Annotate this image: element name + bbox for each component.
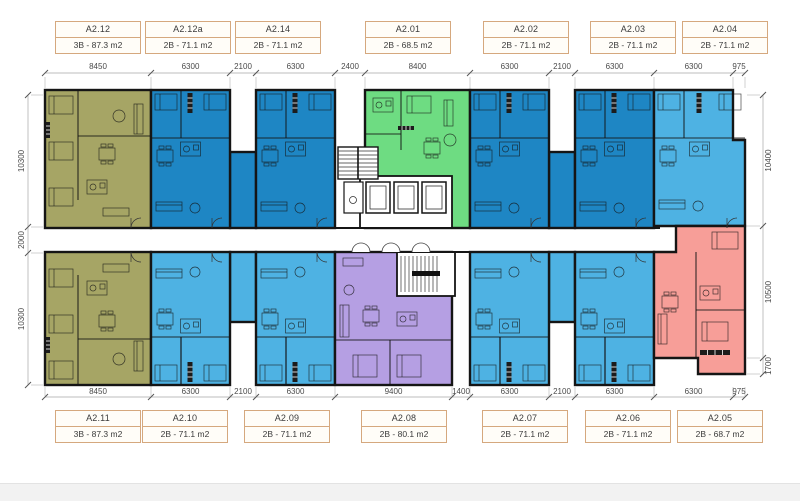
unit-label-a2-12[interactable]: A2.123B - 87.3 m2 xyxy=(55,21,141,54)
unit-id: A2.09 xyxy=(245,411,329,427)
unit-type-area: 3B - 87.3 m2 xyxy=(56,427,140,442)
dimension-value: 2100 xyxy=(553,387,571,396)
unit-type-area: 2B - 71.1 m2 xyxy=(484,38,568,53)
dimension-value: 6300 xyxy=(287,62,305,71)
unit-id: A2.04 xyxy=(683,22,767,38)
unit-label-a2-08[interactable]: A2.082B - 80.1 m2 xyxy=(361,410,447,443)
unit-link-block xyxy=(549,252,575,322)
unit-type-area: 2B - 68.5 m2 xyxy=(366,38,450,53)
unit-id: A2.12a xyxy=(146,22,230,38)
dimension-value: 975 xyxy=(732,387,746,396)
dimension-value: 6300 xyxy=(501,62,519,71)
dimension-value: 10400 xyxy=(764,149,773,172)
dimension-value: 6300 xyxy=(182,62,200,71)
unit-label-a2-04[interactable]: A2.042B - 71.1 m2 xyxy=(682,21,768,54)
unit-label-a2-11[interactable]: A2.113B - 87.3 m2 xyxy=(55,410,141,443)
unit-type-area: 3B - 87.3 m2 xyxy=(56,38,140,53)
dimension-value: 2400 xyxy=(341,62,359,71)
unit-type-area: 2B - 71.1 m2 xyxy=(683,38,767,53)
dimension-value: 1700 xyxy=(764,357,773,375)
dimension-value: 2100 xyxy=(234,387,252,396)
dimension-value: 6300 xyxy=(287,387,305,396)
unit-id: A2.08 xyxy=(362,411,446,427)
dimension-value: 9400 xyxy=(385,387,403,396)
unit-label-a2-09[interactable]: A2.092B - 71.1 m2 xyxy=(244,410,330,443)
unit-id: A2.02 xyxy=(484,22,568,38)
floor-plan-page: 8450630021006300240084006300210063006300… xyxy=(0,0,800,500)
dimension-value: 6300 xyxy=(606,387,624,396)
dimension-value: 2100 xyxy=(234,62,252,71)
unit-type-area: 2B - 71.1 m2 xyxy=(236,38,320,53)
unit-id: A2.12 xyxy=(56,22,140,38)
door-arc xyxy=(412,243,430,252)
dimension-value: 8450 xyxy=(89,387,107,396)
dimension-value: 8450 xyxy=(89,62,107,71)
unit-type-area: 2B - 71.1 m2 xyxy=(146,38,230,53)
unit-a2-11-shape[interactable] xyxy=(45,252,151,385)
unit-label-a2-05[interactable]: A2.052B - 68.7 m2 xyxy=(677,410,763,443)
core-wc-room xyxy=(344,182,363,213)
unit-label-a2-06[interactable]: A2.062B - 71.1 m2 xyxy=(585,410,671,443)
dimension-value: 10500 xyxy=(764,280,773,303)
unit-a2-12-shape[interactable] xyxy=(45,90,151,228)
unit-type-area: 2B - 71.1 m2 xyxy=(591,38,675,53)
unit-id: A2.06 xyxy=(586,411,670,427)
unit-label-a2-12a[interactable]: A2.12a2B - 71.1 m2 xyxy=(145,21,231,54)
dimension-value: 6300 xyxy=(182,387,200,396)
dimension-value: 6300 xyxy=(606,62,624,71)
unit-label-a2-02[interactable]: A2.022B - 71.1 m2 xyxy=(483,21,569,54)
staircase-top xyxy=(338,147,378,179)
door-arc xyxy=(382,243,400,252)
unit-id: A2.01 xyxy=(366,22,450,38)
unit-label-a2-01[interactable]: A2.012B - 68.5 m2 xyxy=(365,21,451,54)
unit-a2-05-shape[interactable] xyxy=(654,226,745,374)
unit-type-area: 2B - 71.1 m2 xyxy=(483,427,567,442)
unit-id: A2.05 xyxy=(678,411,762,427)
unit-label-a2-10[interactable]: A2.102B - 71.1 m2 xyxy=(142,410,228,443)
dimension-value: 10300 xyxy=(17,307,26,330)
unit-link-block xyxy=(549,152,575,228)
door-arc xyxy=(352,243,370,252)
bottom-bar xyxy=(0,483,800,501)
unit-id: A2.10 xyxy=(143,411,227,427)
dimension-value: 2000 xyxy=(17,231,26,249)
unit-id: A2.11 xyxy=(56,411,140,427)
unit-type-area: 2B - 71.1 m2 xyxy=(245,427,329,442)
dimension-value: 6300 xyxy=(501,387,519,396)
unit-link-block xyxy=(230,252,256,322)
unit-type-area: 2B - 71.1 m2 xyxy=(143,427,227,442)
staircase-bottom xyxy=(397,252,455,296)
unit-label-a2-07[interactable]: A2.072B - 71.1 m2 xyxy=(482,410,568,443)
unit-id: A2.03 xyxy=(591,22,675,38)
unit-link-block xyxy=(230,152,256,228)
unit-type-area: 2B - 80.1 m2 xyxy=(362,427,446,442)
dimension-value: 1400 xyxy=(452,387,470,396)
dimension-value: 8400 xyxy=(409,62,427,71)
dimension-value: 6300 xyxy=(685,62,703,71)
dimension-value: 2100 xyxy=(553,62,571,71)
stair-rail xyxy=(412,271,440,276)
dimension-value: 975 xyxy=(732,62,746,71)
dimension-value: 10300 xyxy=(17,149,26,172)
unit-label-a2-14[interactable]: A2.142B - 71.1 m2 xyxy=(235,21,321,54)
unit-type-area: 2B - 71.1 m2 xyxy=(586,427,670,442)
dimension-value: 6300 xyxy=(685,387,703,396)
unit-id: A2.07 xyxy=(483,411,567,427)
unit-type-area: 2B - 68.7 m2 xyxy=(678,427,762,442)
unit-label-a2-03[interactable]: A2.032B - 71.1 m2 xyxy=(590,21,676,54)
unit-id: A2.14 xyxy=(236,22,320,38)
